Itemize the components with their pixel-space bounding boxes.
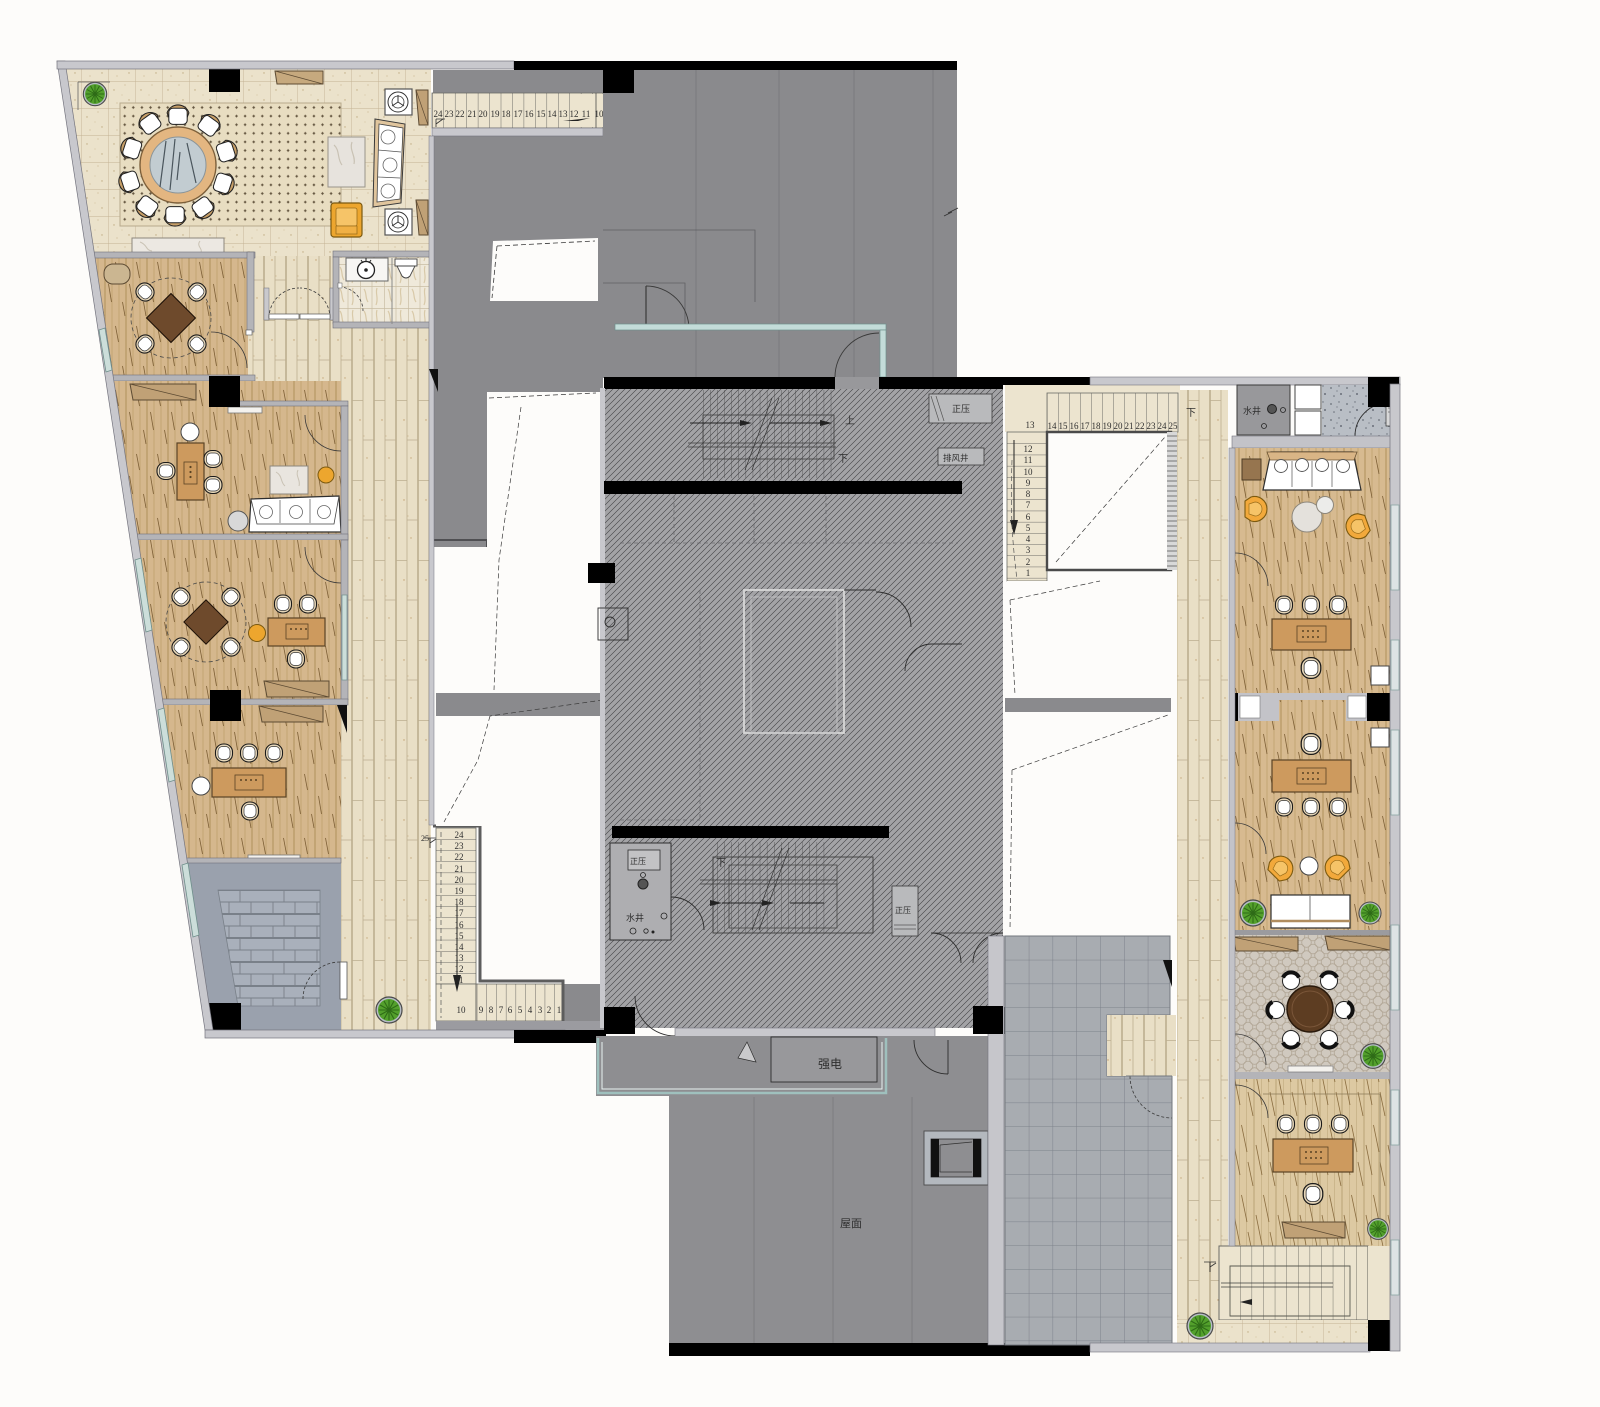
svg-text:排风井: 排风井 xyxy=(943,453,969,463)
svg-text:12: 12 xyxy=(1024,444,1033,454)
svg-text:16: 16 xyxy=(525,109,535,119)
svg-text:上: 上 xyxy=(845,415,855,427)
svg-text:正压: 正压 xyxy=(895,906,911,915)
svg-text:下: 下 xyxy=(1186,408,1196,419)
svg-text:1: 1 xyxy=(1026,568,1031,578)
svg-text:水井: 水井 xyxy=(1243,405,1261,416)
svg-text:12: 12 xyxy=(570,109,579,119)
svg-text:12: 12 xyxy=(455,964,464,974)
svg-text:16: 16 xyxy=(455,920,465,930)
svg-text:9: 9 xyxy=(1026,478,1031,488)
svg-text:10: 10 xyxy=(1024,467,1034,477)
svg-text:下: 下 xyxy=(716,858,726,869)
svg-text:强电: 强电 xyxy=(818,1057,842,1071)
svg-text:10: 10 xyxy=(595,109,605,119)
svg-text:13: 13 xyxy=(1026,420,1036,430)
svg-text:25: 25 xyxy=(1169,421,1179,431)
svg-text:24: 24 xyxy=(455,830,465,840)
svg-text:18: 18 xyxy=(502,109,512,119)
svg-text:17: 17 xyxy=(455,908,465,918)
svg-text:1: 1 xyxy=(557,1005,562,1015)
svg-text:14: 14 xyxy=(548,109,558,119)
svg-text:14: 14 xyxy=(1048,421,1058,431)
svg-text:8: 8 xyxy=(489,1005,494,1015)
svg-text:14: 14 xyxy=(455,942,465,952)
svg-text:15: 15 xyxy=(537,109,547,119)
svg-text:24: 24 xyxy=(434,109,444,119)
svg-text:5: 5 xyxy=(1026,523,1031,533)
svg-text:24: 24 xyxy=(1158,421,1168,431)
svg-text:7: 7 xyxy=(499,1005,504,1015)
svg-text:9: 9 xyxy=(479,1005,484,1015)
svg-text:3: 3 xyxy=(1026,545,1031,555)
svg-text:13: 13 xyxy=(559,109,569,119)
svg-text:20: 20 xyxy=(455,875,465,885)
svg-text:25: 25 xyxy=(421,834,429,843)
svg-text:22: 22 xyxy=(1136,421,1145,431)
svg-text:正压: 正压 xyxy=(952,404,970,414)
svg-text:2: 2 xyxy=(1026,557,1031,567)
svg-text:3: 3 xyxy=(538,1005,543,1015)
svg-text:19: 19 xyxy=(1103,421,1113,431)
svg-text:15: 15 xyxy=(1059,421,1069,431)
svg-text:18: 18 xyxy=(455,897,465,907)
svg-text:7: 7 xyxy=(1026,500,1031,510)
svg-text:22: 22 xyxy=(455,852,464,862)
svg-text:21: 21 xyxy=(1125,421,1134,431)
svg-text:23: 23 xyxy=(445,109,455,119)
svg-text:5: 5 xyxy=(518,1005,523,1015)
svg-text:17: 17 xyxy=(514,109,524,119)
svg-text:6: 6 xyxy=(508,1005,513,1015)
svg-text:19: 19 xyxy=(491,109,501,119)
svg-text:水井: 水井 xyxy=(626,912,644,923)
svg-text:8: 8 xyxy=(1026,489,1031,499)
svg-text:20: 20 xyxy=(1114,421,1124,431)
svg-text:屋面: 屋面 xyxy=(840,1217,862,1230)
svg-text:正压: 正压 xyxy=(630,857,646,866)
svg-text:10: 10 xyxy=(457,1005,467,1015)
svg-text:18: 18 xyxy=(1092,421,1102,431)
svg-text:20: 20 xyxy=(479,109,489,119)
svg-text:13: 13 xyxy=(455,953,465,963)
svg-text:19: 19 xyxy=(455,886,465,896)
svg-text:2: 2 xyxy=(547,1005,552,1015)
svg-text:4: 4 xyxy=(528,1005,533,1015)
svg-text:16: 16 xyxy=(1070,421,1080,431)
svg-text:4: 4 xyxy=(1026,534,1031,544)
svg-text:22: 22 xyxy=(456,109,465,119)
svg-text:11: 11 xyxy=(582,109,591,119)
svg-text:17: 17 xyxy=(1081,421,1091,431)
svg-text:23: 23 xyxy=(1147,421,1157,431)
svg-text:21: 21 xyxy=(455,864,464,874)
svg-text:11: 11 xyxy=(1024,455,1033,465)
svg-text:21: 21 xyxy=(468,109,477,119)
svg-text:15: 15 xyxy=(455,931,465,941)
svg-text:6: 6 xyxy=(1026,512,1031,522)
svg-text:下: 下 xyxy=(838,454,848,465)
svg-text:23: 23 xyxy=(455,841,465,851)
